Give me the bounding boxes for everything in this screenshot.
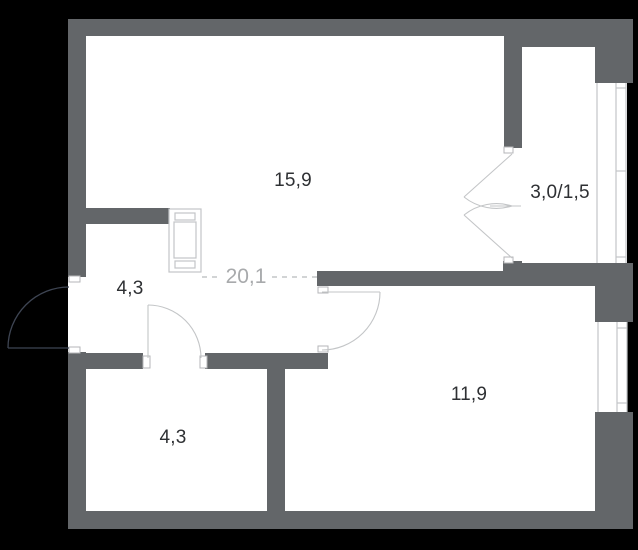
wall-left-lower — [68, 352, 86, 529]
bedroom-jamb-bottom — [318, 346, 328, 352]
cabinet-top-drawer — [175, 213, 195, 220]
entrance-jamb-bottom — [69, 347, 80, 353]
wall-right-mid — [595, 263, 633, 322]
room-label-balcony: 3,0/1,5 — [530, 182, 590, 204]
wall-bathroom-bedroom — [267, 369, 285, 511]
floor-plan: 15,9 3,0/1,5 4,3 20,1 11,9 4,3 — [0, 0, 638, 550]
room-label-hallway: 4,3 — [116, 278, 143, 300]
entrance-jamb-top — [69, 276, 80, 282]
wall-corner-ne — [595, 19, 633, 83]
zone-label-combined: 20,1 — [221, 265, 272, 289]
room-label-bedroom: 11,9 — [451, 384, 487, 406]
wall-living-balcony — [504, 36, 522, 148]
balcony-jamb-top — [504, 147, 513, 153]
room-label-living: 15,9 — [274, 170, 312, 192]
room-label-bathroom: 4,3 — [159, 427, 186, 449]
cabinet — [169, 209, 201, 272]
wall-bottom — [68, 511, 633, 529]
wall-hall-living — [86, 208, 170, 224]
cabinet-door — [174, 222, 196, 258]
cabinet-bottom-drawer — [175, 261, 195, 268]
wall-right-lower — [595, 412, 633, 529]
wall-bathroom-top-right — [205, 353, 328, 369]
wall-bathroom-top-left — [86, 353, 143, 369]
wall-living-bedroom — [317, 271, 595, 286]
wall-left-upper — [68, 19, 86, 277]
bathroom-jamb-left — [143, 356, 150, 368]
floor-plan-drawing — [0, 0, 638, 550]
